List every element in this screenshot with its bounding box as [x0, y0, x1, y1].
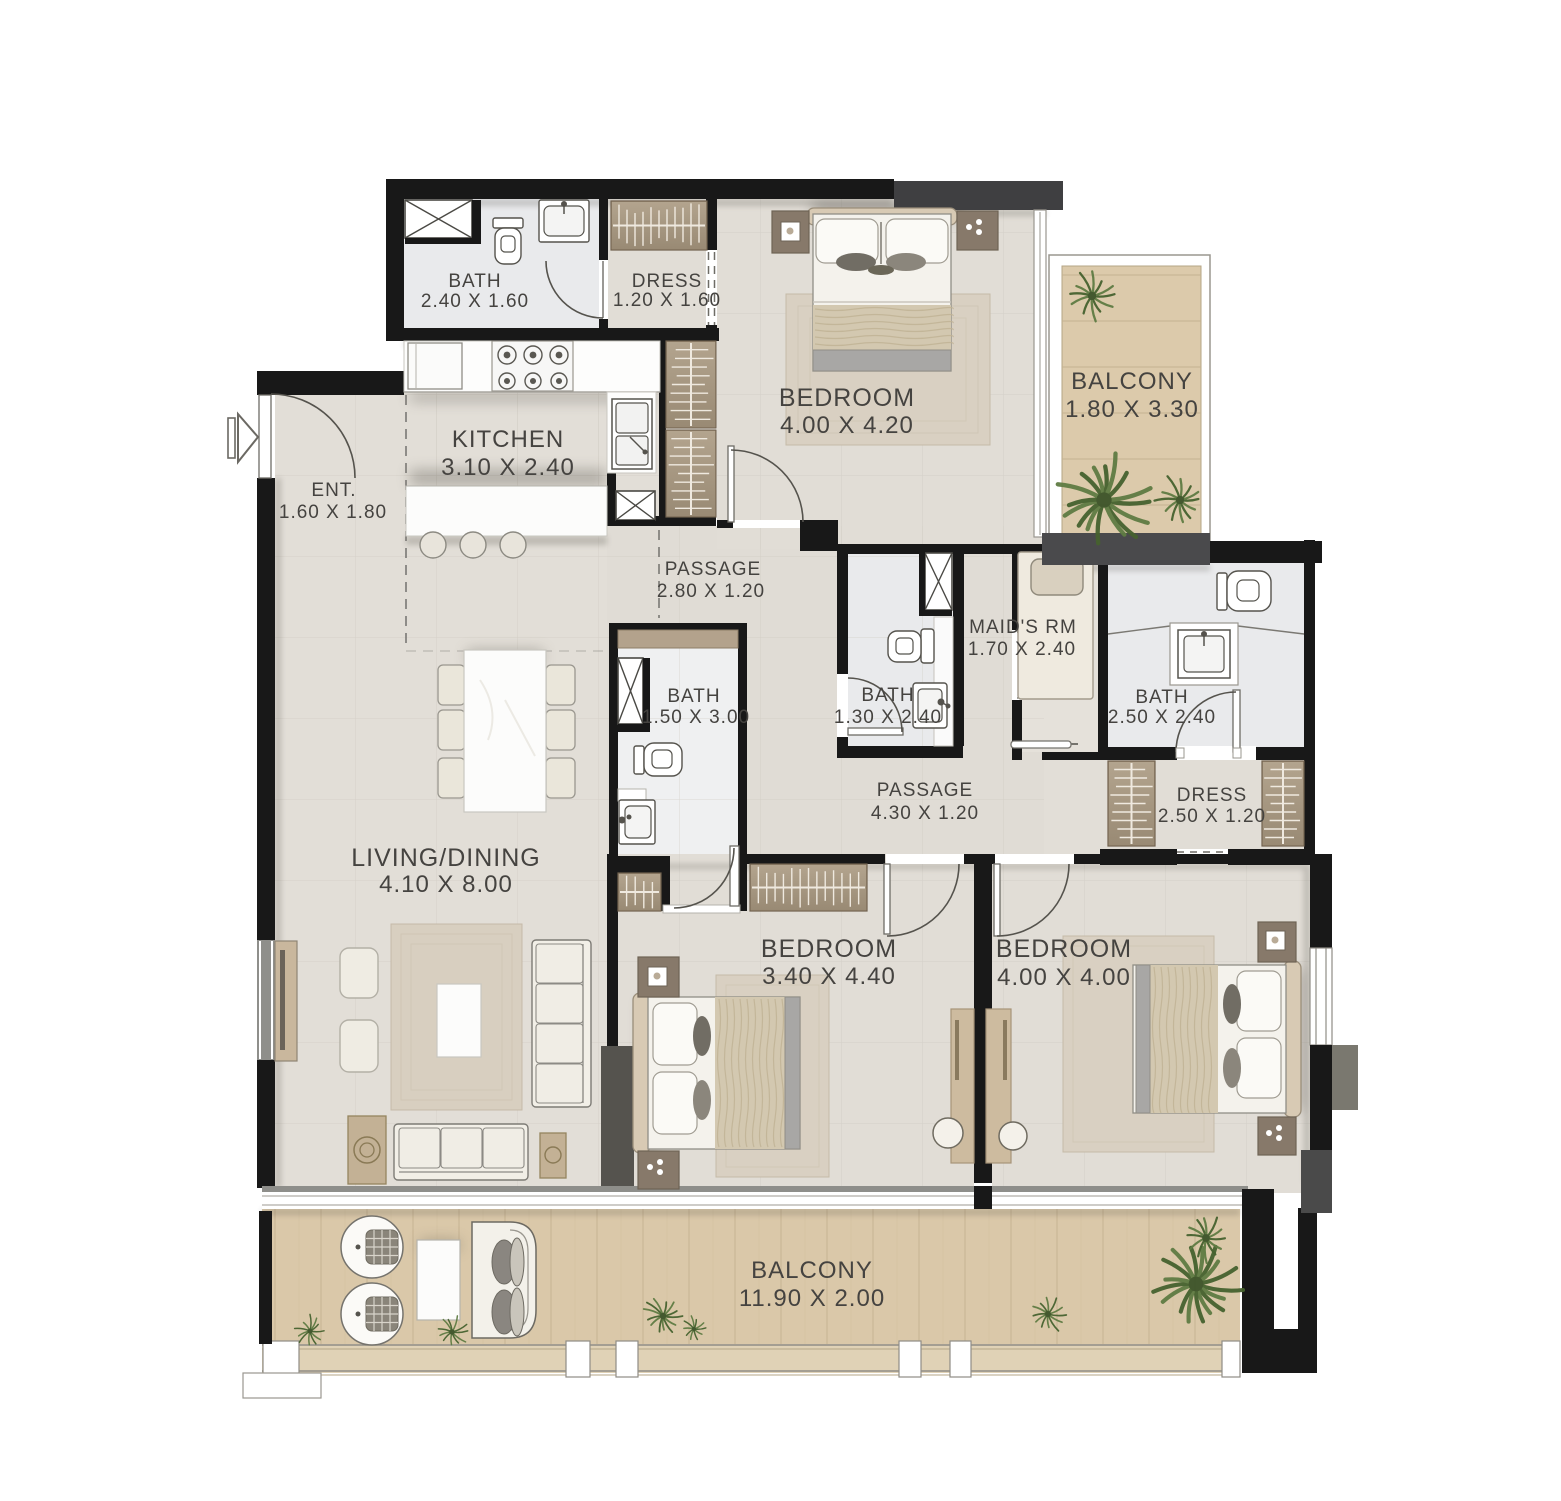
- svg-text:BEDROOM: BEDROOM: [761, 935, 897, 963]
- svg-text:2.40 X 1.60: 2.40 X 1.60: [421, 291, 529, 312]
- svg-text:4.10 X 8.00: 4.10 X 8.00: [379, 871, 513, 898]
- svg-text:11.90 X 2.00: 11.90 X 2.00: [739, 1285, 885, 1312]
- svg-text:1.50 X 3.00: 1.50 X 3.00: [642, 707, 750, 728]
- svg-text:BALCONY: BALCONY: [751, 1257, 873, 1284]
- svg-text:BATH: BATH: [448, 271, 501, 292]
- svg-text:2.80 X 1.20: 2.80 X 1.20: [657, 581, 765, 602]
- svg-text:PASSAGE: PASSAGE: [877, 780, 973, 801]
- svg-text:LIVING/DINING: LIVING/DINING: [351, 844, 540, 872]
- svg-text:4.00 X 4.00: 4.00 X 4.00: [997, 964, 1131, 991]
- svg-text:1.30 X 2.40: 1.30 X 2.40: [834, 707, 942, 728]
- svg-text:BEDROOM: BEDROOM: [779, 384, 915, 412]
- svg-text:3.40 X 4.40: 3.40 X 4.40: [762, 963, 896, 990]
- svg-text:KITCHEN: KITCHEN: [452, 426, 564, 453]
- svg-text:MAID'S RM: MAID'S RM: [969, 617, 1077, 638]
- svg-text:1.70 X 2.40: 1.70 X 2.40: [968, 639, 1076, 660]
- svg-text:DRESS: DRESS: [1177, 785, 1247, 806]
- svg-text:1.20 X 1.60: 1.20 X 1.60: [613, 290, 721, 311]
- svg-text:3.10 X 2.40: 3.10 X 2.40: [441, 454, 575, 481]
- svg-text:PASSAGE: PASSAGE: [665, 559, 761, 580]
- svg-text:ENT.: ENT.: [311, 480, 356, 501]
- svg-text:BATH: BATH: [1135, 687, 1188, 708]
- svg-text:4.30 X 1.20: 4.30 X 1.20: [871, 803, 979, 824]
- svg-text:BATH: BATH: [667, 686, 720, 707]
- svg-text:4.00 X 4.20: 4.00 X 4.20: [780, 412, 914, 439]
- svg-text:2.50 X 1.20: 2.50 X 1.20: [1158, 806, 1266, 827]
- svg-text:BATH: BATH: [861, 685, 914, 706]
- svg-text:1.60 X 1.80: 1.60 X 1.80: [279, 502, 387, 523]
- svg-text:1.80 X 3.30: 1.80 X 3.30: [1065, 396, 1199, 423]
- svg-text:BEDROOM: BEDROOM: [996, 935, 1132, 963]
- svg-text:DRESS: DRESS: [632, 271, 702, 292]
- svg-text:BALCONY: BALCONY: [1071, 368, 1193, 395]
- svg-text:2.50 X 2.40: 2.50 X 2.40: [1108, 707, 1216, 728]
